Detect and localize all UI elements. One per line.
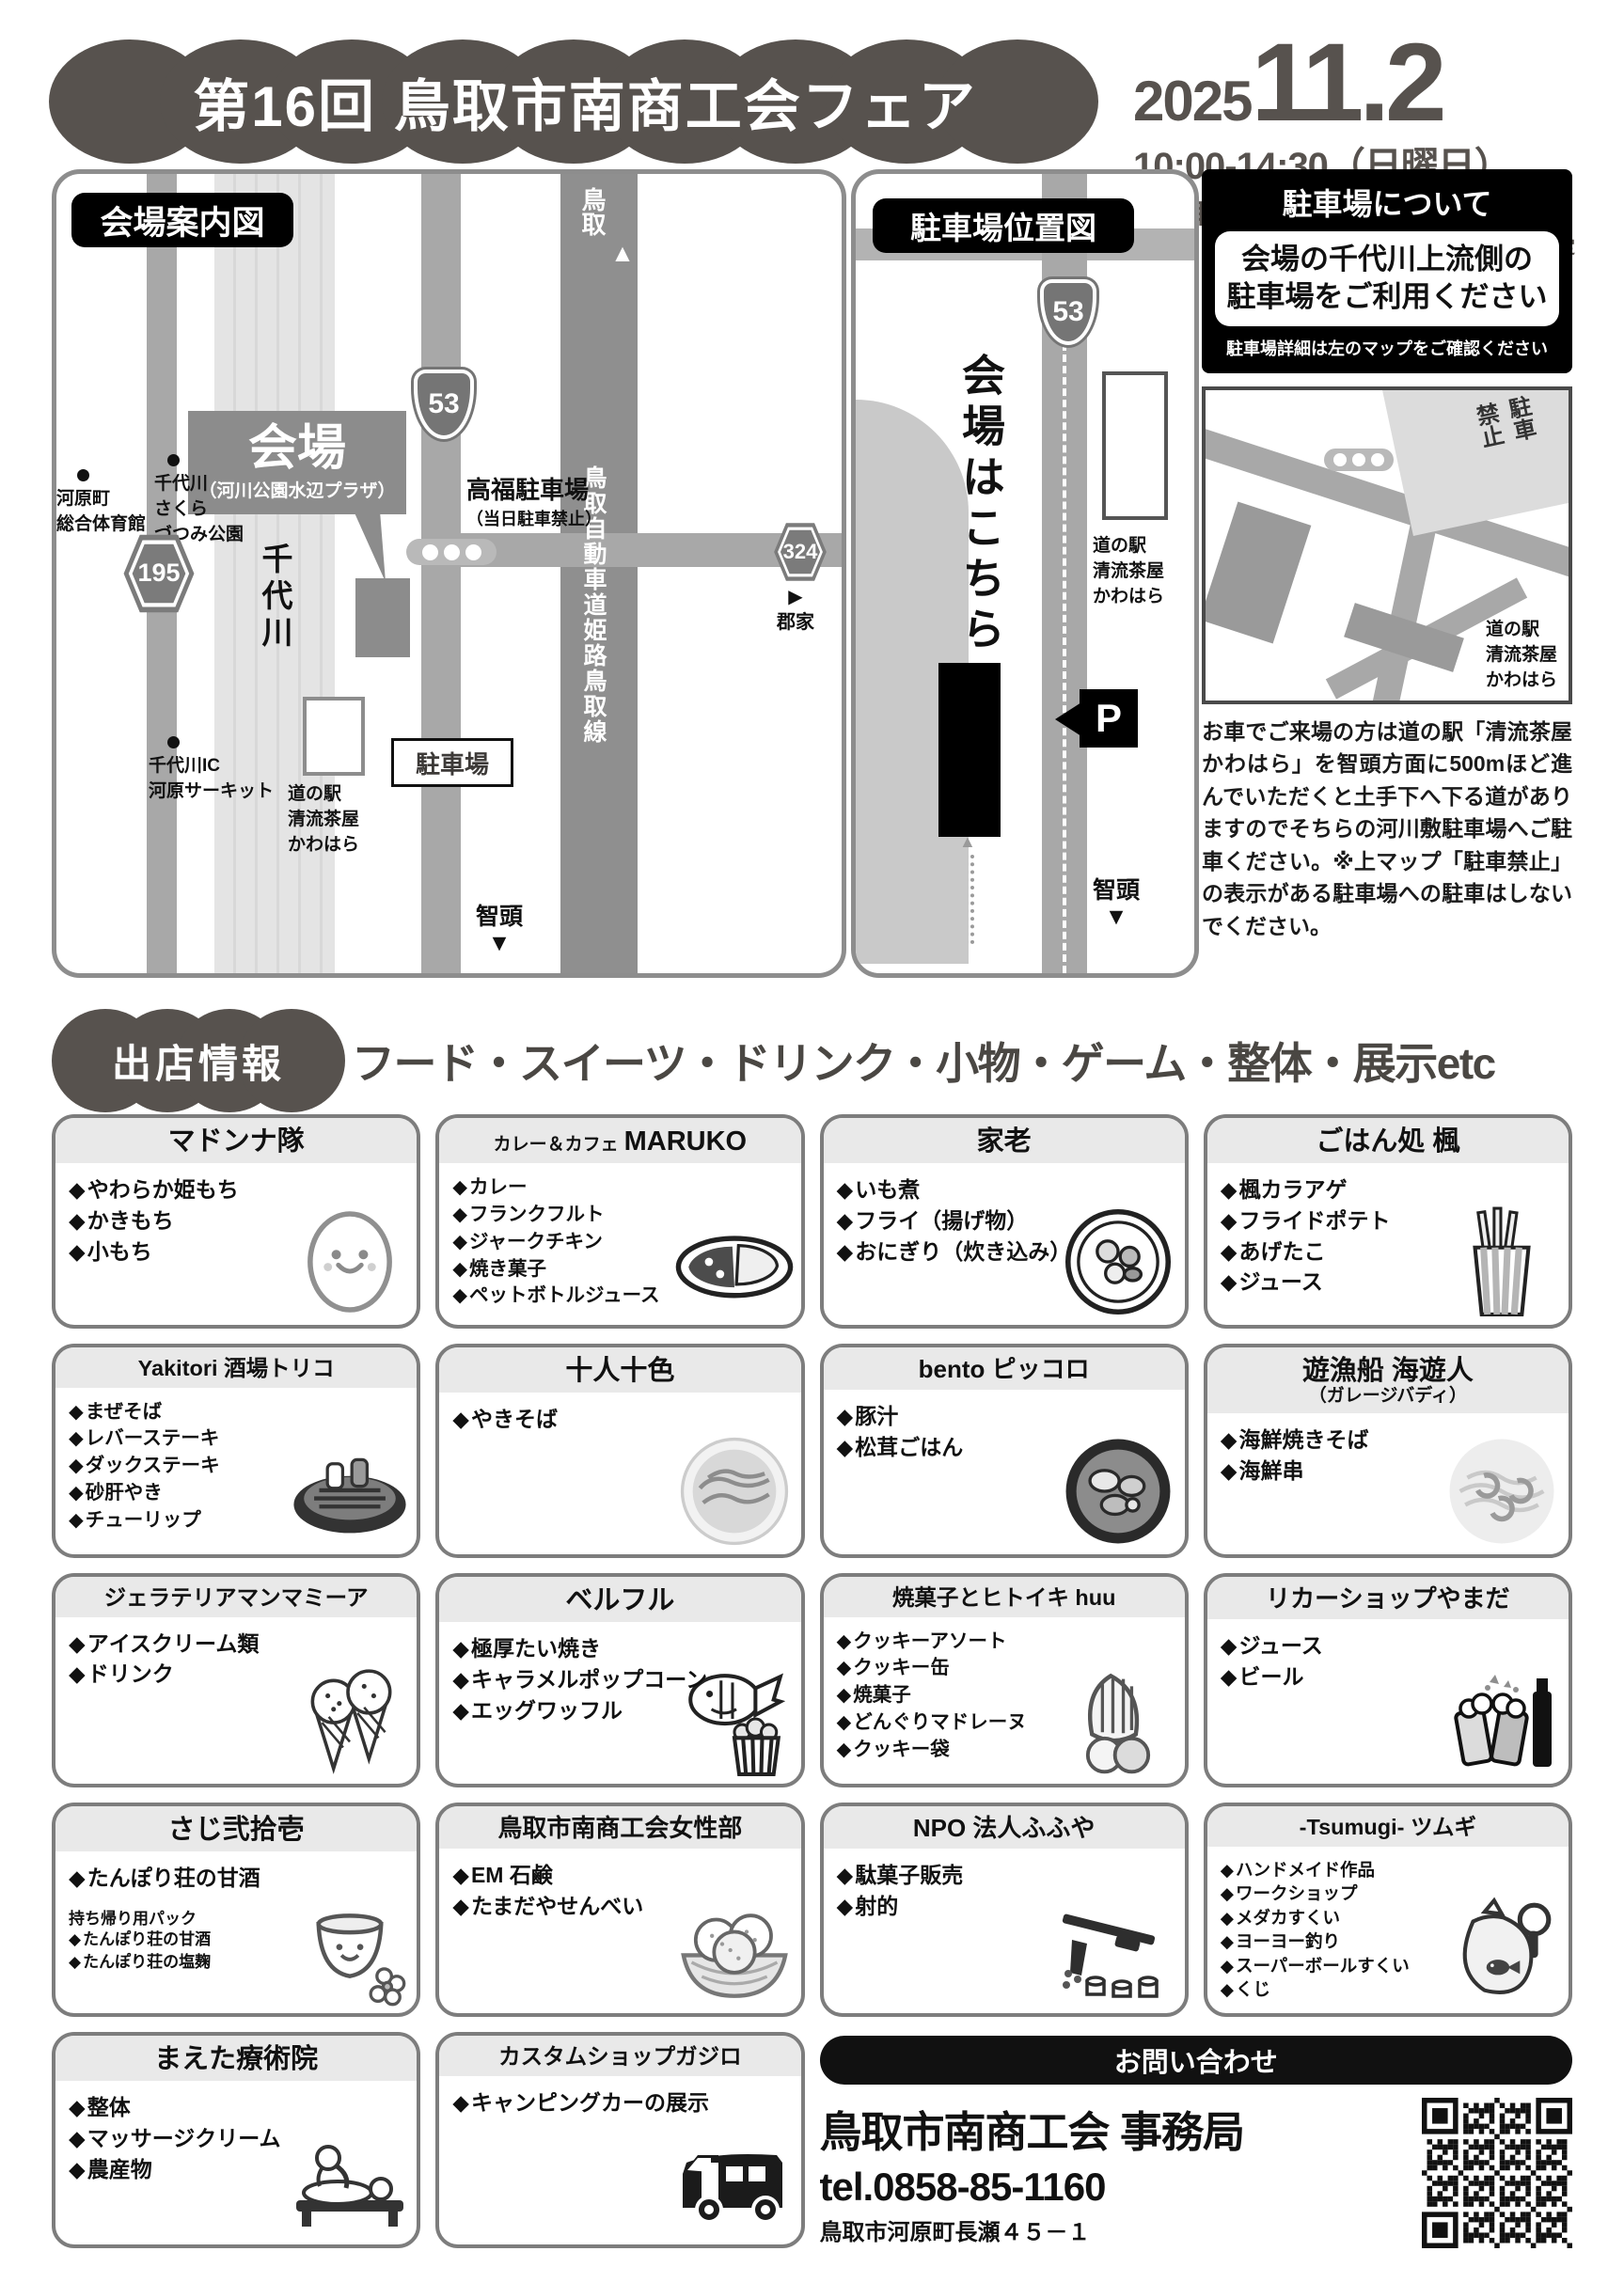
vendor-item: ビール: [1221, 1661, 1557, 1693]
vendor-card-body: いも煮フライ（揚げ物）おにぎり（炊き込み）: [824, 1163, 1185, 1325]
vendor-card: Yakitori 酒場トリコまぜそばレバーステーキダックステーキ砂肝やきチューリ…: [52, 1344, 420, 1558]
vendor-card-body: クッキーアソートクッキー缶焼菓子どんぐりマドレーヌクッキー袋: [824, 1617, 1185, 1784]
direction-kooge: ▶郡家: [777, 588, 814, 634]
parking-about-box: 駐車場について 会場の千代川上流側の 駐車場をご利用ください 駐車場詳細は左のマ…: [1202, 169, 1572, 373]
sakura-park-dot: [167, 454, 180, 466]
venue-building: [355, 578, 410, 657]
vendor-name: さじ弐拾壱: [168, 1815, 305, 1845]
michinoeki-label: 道の駅 清流茶屋 かわはら: [1486, 615, 1557, 691]
vendor-item: ドリンク: [69, 1659, 405, 1690]
direction-chizu: 智頭▼: [476, 898, 523, 955]
michinoeki-building: [1102, 371, 1168, 520]
vendor-item: アイスクリーム類: [69, 1629, 405, 1660]
vendor-item: おにぎり（炊き込み）: [837, 1236, 1174, 1267]
vendor-item: 農産物: [69, 2154, 405, 2185]
vendor-items: いも煮フライ（揚げ物）おにぎり（炊き込み）: [837, 1174, 1174, 1267]
vendor-grid: マドンナ隊やわらか姫もちかきもち小もちカレー＆カフェMARUKOカレーフランクフ…: [52, 1114, 1572, 2248]
venue-pointer: [350, 514, 386, 582]
vendor-item: 極厚たい焼き: [452, 1633, 789, 1664]
vendor-card-header: まえた療術院: [55, 2036, 417, 2081]
vendor-item: 駄菓子販売: [837, 1860, 1174, 1891]
event-title: 第16回 鳥取市南商工会フェア: [49, 39, 1121, 164]
contact-block: お問い合わせ 鳥取市南商工会 事務局 tel.0858-85-1160 鳥取市河…: [820, 2032, 1573, 2248]
circuit-dot: [167, 736, 180, 748]
contact-title: お問い合わせ: [820, 2036, 1573, 2085]
vendor-card-header: 鳥取市南商工会女性部: [439, 1806, 800, 1849]
vendor-items: ジュースビール: [1221, 1630, 1557, 1692]
vendor-name-sub: （ガレージバディ）: [1213, 1387, 1563, 1406]
venue-map-panel: ▲鳥取 鳥取自動車道姫路鳥取線 会場案内図 53 195 324 ▶郡家 会場 …: [52, 169, 846, 978]
vendor-card-header: 家老: [824, 1118, 1185, 1163]
direction-tottori: ▲鳥取: [575, 187, 635, 319]
parking-label-box: 駐車場: [391, 738, 513, 787]
vendor-item: 海鮮串: [1221, 1456, 1557, 1487]
vendor-card: まえた療術院整体マッサージクリーム農産物: [52, 2032, 420, 2248]
road-53-vertical: [421, 174, 461, 973]
vendor-items: 楓カラアゲフライドポテトあげたこジュース: [1221, 1174, 1557, 1298]
up-arrow-icon: ▲: [610, 187, 635, 319]
vendor-item: ジュース: [1221, 1267, 1557, 1298]
vendor-item: ジャークチキン: [452, 1229, 789, 1256]
vendor-card-body: まぜそばレバーステーキダックステーキ砂肝やきチューリップ: [55, 1388, 417, 1554]
vendor-card-body: アイスクリーム類ドリンク: [55, 1617, 417, 1784]
vendor-item: ハンドメイド作品: [1221, 1858, 1557, 1882]
gym-dot: [77, 469, 89, 481]
contact-org: 鳥取市南商工会 事務局: [820, 2098, 1408, 2159]
vendor-card-header: カレー＆カフェMARUKO: [439, 1118, 800, 1163]
vendor-item: ワークショップ: [1221, 1882, 1557, 1906]
vendor-item: ダックステーキ: [69, 1453, 405, 1480]
traffic-light-icon: [1324, 449, 1394, 471]
takeout-note: 持ち帰り用パックたんぽり荘の甘酒たんぽり荘の塩麹: [69, 1905, 405, 1974]
vendor-item: 整体: [69, 2092, 405, 2123]
vendor-name: -Tsumugi- ツムギ: [1300, 1815, 1476, 1839]
vendor-card-body: 海鮮焼きそば海鮮串: [1207, 1413, 1569, 1554]
parking-detail-map: 駐車 禁止 道の駅 清流茶屋 かわはら: [1202, 386, 1572, 704]
vendor-name: bento ピッコロ: [919, 1355, 1090, 1383]
vendor-item: いも煮: [837, 1174, 1174, 1205]
vendor-items: カレーフランクフルトジャークチキン焼き菓子ペットボトルジュース: [452, 1174, 789, 1309]
vendor-item: どんぐりマドレーヌ: [837, 1709, 1174, 1737]
vendor-item: クッキー袋: [837, 1737, 1174, 1764]
vendor-card-header: bento ピッコロ: [824, 1347, 1185, 1390]
vendor-item: かきもち: [69, 1205, 405, 1236]
vendor-card-body: やきそば: [439, 1393, 800, 1554]
vendor-card: ベルフル極厚たい焼きキャラメルポップコーンエッグワッフル: [435, 1573, 804, 1787]
vendor-card-header: ごはん処 楓: [1207, 1118, 1569, 1163]
venue-map-title: 会場案内図: [71, 193, 293, 247]
vendor-items: やきそば: [452, 1404, 789, 1435]
vendor-card-body: ジュースビール: [1207, 1619, 1569, 1784]
vendor-card-header: カスタムショップガジロ: [439, 2036, 800, 2076]
vendor-card-header: NPO 法人ふふや: [824, 1806, 1185, 1849]
vendor-card-body: 極厚たい焼きキャラメルポップコーンエッグワッフル: [439, 1622, 800, 1784]
vendor-name-prefix: カレー＆カフェ: [494, 1135, 619, 1155]
venue-label: 会場: [188, 424, 406, 473]
vendor-name: マドンナ隊: [168, 1126, 305, 1157]
vendor-card-body: たんぽり荘の甘酒持ち帰り用パックたんぽり荘の甘酒たんぽり荘の塩麹: [55, 1851, 417, 2013]
vendor-name: Yakitori 酒場トリコ: [138, 1356, 335, 1380]
vendor-items: アイスクリーム類ドリンク: [69, 1629, 405, 1690]
vendor-card-header: マドンナ隊: [55, 1118, 417, 1163]
vendor-name: カスタムショップガジロ: [498, 2044, 742, 2069]
vendor-item: やきそば: [452, 1404, 789, 1435]
vendor-item: くじ: [1221, 1977, 1557, 2002]
vendor-item: フライ（揚げ物）: [837, 1205, 1174, 1236]
vendor-card: 遊漁船 海遊人（ガレージバディ）海鮮焼きそば海鮮串: [1204, 1344, 1572, 1558]
vendor-card: 家老いも煮フライ（揚げ物）おにぎり（炊き込み）: [820, 1114, 1189, 1329]
michinoeki-building: [303, 697, 365, 776]
vendor-item: フランクフルト: [452, 1202, 789, 1229]
sakura-park-label: 千代川 さくら づつみ公園: [154, 469, 244, 545]
vendor-card-header: -Tsumugi- ツムギ: [1207, 1806, 1569, 1847]
vendor-items: まぜそばレバーステーキダックステーキ砂肝やきチューリップ: [69, 1399, 405, 1534]
vendor-items: クッキーアソートクッキー缶焼菓子どんぐりマドレーヌクッキー袋: [837, 1629, 1174, 1763]
vendor-card: 十人十色やきそば: [435, 1344, 804, 1558]
vendor-item: チューリップ: [69, 1507, 405, 1535]
vendor-items: 極厚たい焼きキャラメルポップコーンエッグワッフル: [452, 1633, 789, 1725]
vendor-card-header: 十人十色: [439, 1347, 800, 1393]
parking-map-title: 駐車場位置図: [873, 198, 1134, 253]
vendor-name: ごはん処 楓: [1316, 1126, 1459, 1157]
vendor-name: NPO 法人ふふや: [913, 1814, 1096, 1842]
vendor-name: 家老: [977, 1126, 1032, 1157]
vendor-name: まえた療術院: [154, 2044, 318, 2074]
michinoeki-label: 道の駅 清流茶屋 かわはら: [288, 779, 359, 856]
vendor-card: bento ピッコロ豚汁松茸ごはん: [820, 1344, 1189, 1558]
vendor-card-body: EM 石鹸たまだやせんべい: [439, 1849, 800, 2013]
route-324-badge: 324: [773, 522, 828, 582]
vendor-items: ハンドメイド作品ワークショップメダカすくいヨーヨー釣りスーパーボールすくいくじ: [1221, 1858, 1557, 2002]
vendor-name: リカーショップやまだ: [1266, 1584, 1509, 1613]
down-arrow-icon: ▼: [1093, 905, 1140, 929]
takafuku-parking-label: 高福駐車場 （当日駐車禁止）: [466, 471, 602, 530]
vendor-items: 豚汁松茸ごはん: [837, 1401, 1174, 1462]
takeout-note-item: たんぽり荘の塩麹: [69, 1951, 405, 1974]
vendor-card-header: ジェラテリアマンマミーア: [55, 1577, 417, 1617]
takeout-note-item: たんぽり荘の甘酒: [69, 1929, 405, 1951]
camper-van-illustration: [673, 2124, 796, 2239]
vendor-card-header: 焼菓子とヒトイキ huu: [824, 1577, 1185, 1617]
vendor-item: たんぽり荘の甘酒: [69, 1863, 405, 1894]
vendor-card-body: 駄菓子販売射的: [824, 1849, 1185, 2013]
vendor-card-body: 楓カラアゲフライドポテトあげたこジュース: [1207, 1163, 1569, 1325]
contact-address: 鳥取市河原町長瀬４５－１: [820, 2213, 1408, 2246]
vendor-item: エッグワッフル: [452, 1695, 789, 1726]
listing-badge-label: 出店情報: [52, 1009, 345, 1112]
vendor-card: -Tsumugi- ツムギハンドメイド作品ワークショップメダカすくいヨーヨー釣り…: [1204, 1803, 1572, 2017]
takeout-note-title: 持ち帰り用パック: [69, 1905, 405, 1929]
listing-headline: フード・スイーツ・ドリンク・小物・ゲーム・整体・展示etc: [352, 1009, 1495, 1112]
contact-tel: tel.0858-85-1160: [820, 2165, 1408, 2210]
vendor-name: 遊漁船 海遊人: [1302, 1356, 1474, 1386]
vendor-item: 砂肝やき: [69, 1480, 405, 1507]
vendor-item: 楓カラアゲ: [1221, 1174, 1557, 1205]
vendor-items: 駄菓子販売射的: [837, 1860, 1174, 1921]
vendor-item: ヨーヨー釣り: [1221, 1929, 1557, 1954]
listing-badge: 出店情報: [52, 1009, 345, 1112]
vendor-item: EM 石鹸: [452, 1860, 789, 1891]
vendor-name: 焼菓子とヒトイキ huu: [892, 1585, 1116, 1610]
vendor-card-header: 遊漁船 海遊人（ガレージバディ）: [1207, 1347, 1569, 1413]
arrow-head-icon: ▲: [959, 832, 976, 852]
vendor-card-header: Yakitori 酒場トリコ: [55, 1347, 417, 1388]
vendor-card: 鳥取市南商工会女性部EM 石鹸たまだやせんべい: [435, 1803, 804, 2017]
parking-p-badge: P: [1080, 689, 1138, 748]
vendor-item: 豚汁: [837, 1401, 1174, 1432]
vendor-items: キャンピングカーの展示: [452, 2087, 789, 2118]
vendor-card-header: ベルフル: [439, 1577, 800, 1622]
walk-route-arrow: [970, 855, 974, 944]
vendor-item: 小もち: [69, 1236, 405, 1267]
vendor-card-body: カレーフランクフルトジャークチキン焼き菓子ペットボトルジュース: [439, 1163, 800, 1325]
vendor-name: 鳥取市南商工会女性部: [497, 1814, 742, 1842]
vendor-item: キャラメルポップコーン: [452, 1664, 789, 1695]
vendor-card: ジェラテリアマンマミーアアイスクリーム類ドリンク: [52, 1573, 420, 1787]
vendor-item: あげたこ: [1221, 1236, 1557, 1267]
venue-here-label: 会場はこちら: [950, 353, 1012, 813]
vendor-items: たんぽり荘の甘酒: [69, 1863, 405, 1894]
vendor-item: 焼菓子: [837, 1682, 1174, 1709]
vendor-card: マドンナ隊やわらか姫もちかきもち小もち: [52, 1114, 420, 1329]
traffic-light-icon: [406, 539, 497, 565]
vendor-item: ペットボトルジュース: [452, 1283, 789, 1310]
vendor-card-header: さじ弐拾壱: [55, 1806, 417, 1851]
parking-map-panel: 駐車場位置図 53 会場はこちら 道の駅 清流茶屋 かわはら P ▲ 智頭▼: [851, 169, 1199, 978]
vendor-name: ジェラテリアマンマミーア: [104, 1585, 369, 1610]
vendor-card-body: 豚汁松茸ごはん: [824, 1390, 1185, 1554]
vendor-card: NPO 法人ふふや駄菓子販売射的: [820, 1803, 1189, 2017]
event-date: 11.2: [1251, 36, 1442, 130]
vendor-items: EM 石鹸たまだやせんべい: [452, 1860, 789, 1921]
vendor-item: カレー: [452, 1174, 789, 1202]
vendor-items: 海鮮焼きそば海鮮串: [1221, 1425, 1557, 1486]
road-center-line: [1063, 343, 1066, 973]
river-name: 千代川: [252, 543, 297, 759]
vendor-items: やわらか姫もちかきもち小もち: [69, 1174, 405, 1267]
vendor-item: まぜそば: [69, 1399, 405, 1426]
vendor-item: 射的: [837, 1891, 1174, 1922]
vendor-item: レバーステーキ: [69, 1425, 405, 1453]
right-arrow-icon: ▶: [777, 588, 814, 606]
michinoeki-label: 道の駅 清流茶屋 かわはら: [1093, 531, 1164, 607]
vendor-items: 整体マッサージクリーム農産物: [69, 2092, 405, 2184]
vendor-item: マッサージクリーム: [69, 2123, 405, 2154]
parking-highlight: 会場の千代川上流側の 駐車場をご利用ください: [1215, 231, 1559, 326]
parking-about-title: 駐車場について: [1215, 181, 1559, 224]
vendor-item: たまだやせんべい: [452, 1891, 789, 1922]
circuit-label: 千代川IC 河原サーキット: [149, 751, 274, 802]
vendor-card-body: ハンドメイド作品ワークショップメダカすくいヨーヨー釣りスーパーボールすくいくじ: [1207, 1847, 1569, 2013]
parking-info-column: 駐車場について 会場の千代川上流側の 駐車場をご利用ください 駐車場詳細は左のマ…: [1202, 169, 1572, 942]
vendor-item: 松茸ごはん: [837, 1432, 1174, 1463]
yakisoba-plate-illustration: [673, 1434, 796, 1549]
vendor-item: メダカすくい: [1221, 1906, 1557, 1930]
vendor-item: 海鮮焼きそば: [1221, 1425, 1557, 1456]
vendor-name: MARUKO: [624, 1126, 748, 1157]
vendor-item: クッキーアソート: [837, 1629, 1174, 1656]
vendor-card-header: リカーショップやまだ: [1207, 1577, 1569, 1619]
vendor-card-body: やわらか姫もちかきもち小もち: [55, 1163, 417, 1325]
parking-note: 駐車場詳細は左のマップをご確認ください: [1215, 336, 1559, 360]
vendor-card-body: 整体マッサージクリーム農産物: [55, 2081, 417, 2244]
direction-chizu: 智頭▼: [1093, 872, 1140, 929]
vendor-item: スーパーボールすくい: [1221, 1954, 1557, 1978]
vendor-card: カスタムショップガジロキャンピングカーの展示: [435, 2032, 804, 2248]
vendor-card-body: キャンピングカーの展示: [439, 2076, 800, 2244]
vendor-item: クッキー缶: [837, 1655, 1174, 1682]
vendor-card: リカーショップやまだジュースビール: [1204, 1573, 1572, 1787]
vendor-card: カレー＆カフェMARUKOカレーフランクフルトジャークチキン焼き菓子ペットボトル…: [435, 1114, 804, 1329]
vendor-name: ベルフル: [565, 1585, 674, 1615]
vendor-item: フライドポテト: [1221, 1205, 1557, 1236]
vendor-item: 焼き菓子: [452, 1256, 789, 1283]
vendor-item: やわらか姫もち: [69, 1174, 405, 1205]
parking-instructions: お車でご来場の方は道の駅「清流茶屋かわはら」を智頭方面に500mほど進んでいただ…: [1202, 716, 1572, 943]
takeout-note-items: たんぽり荘の甘酒たんぽり荘の塩麹: [69, 1929, 405, 1974]
event-flyer: 第16回 鳥取市南商工会フェア 2025 11.2 10:00-14:30（日曜…: [0, 0, 1624, 2283]
title-banner: 第16回 鳥取市南商工会フェア: [49, 39, 1121, 164]
building-block: [1202, 501, 1311, 643]
vendor-item: ジュース: [1221, 1630, 1557, 1661]
event-year: 2025: [1133, 69, 1251, 134]
down-arrow-icon: ▼: [476, 932, 523, 955]
vendor-name: 十人十色: [565, 1356, 674, 1386]
vendor-card: さじ弐拾壱たんぽり荘の甘酒持ち帰り用パックたんぽり荘の甘酒たんぽり荘の塩麹: [52, 1803, 420, 2017]
qr-code: [1422, 2098, 1572, 2248]
vendor-card: ごはん処 楓楓カラアゲフライドポテトあげたこジュース: [1204, 1114, 1572, 1329]
vendor-item: キャンピングカーの展示: [452, 2087, 789, 2118]
vendor-card: 焼菓子とヒトイキ huuクッキーアソートクッキー缶焼菓子どんぐりマドレーヌクッキ…: [820, 1573, 1189, 1787]
